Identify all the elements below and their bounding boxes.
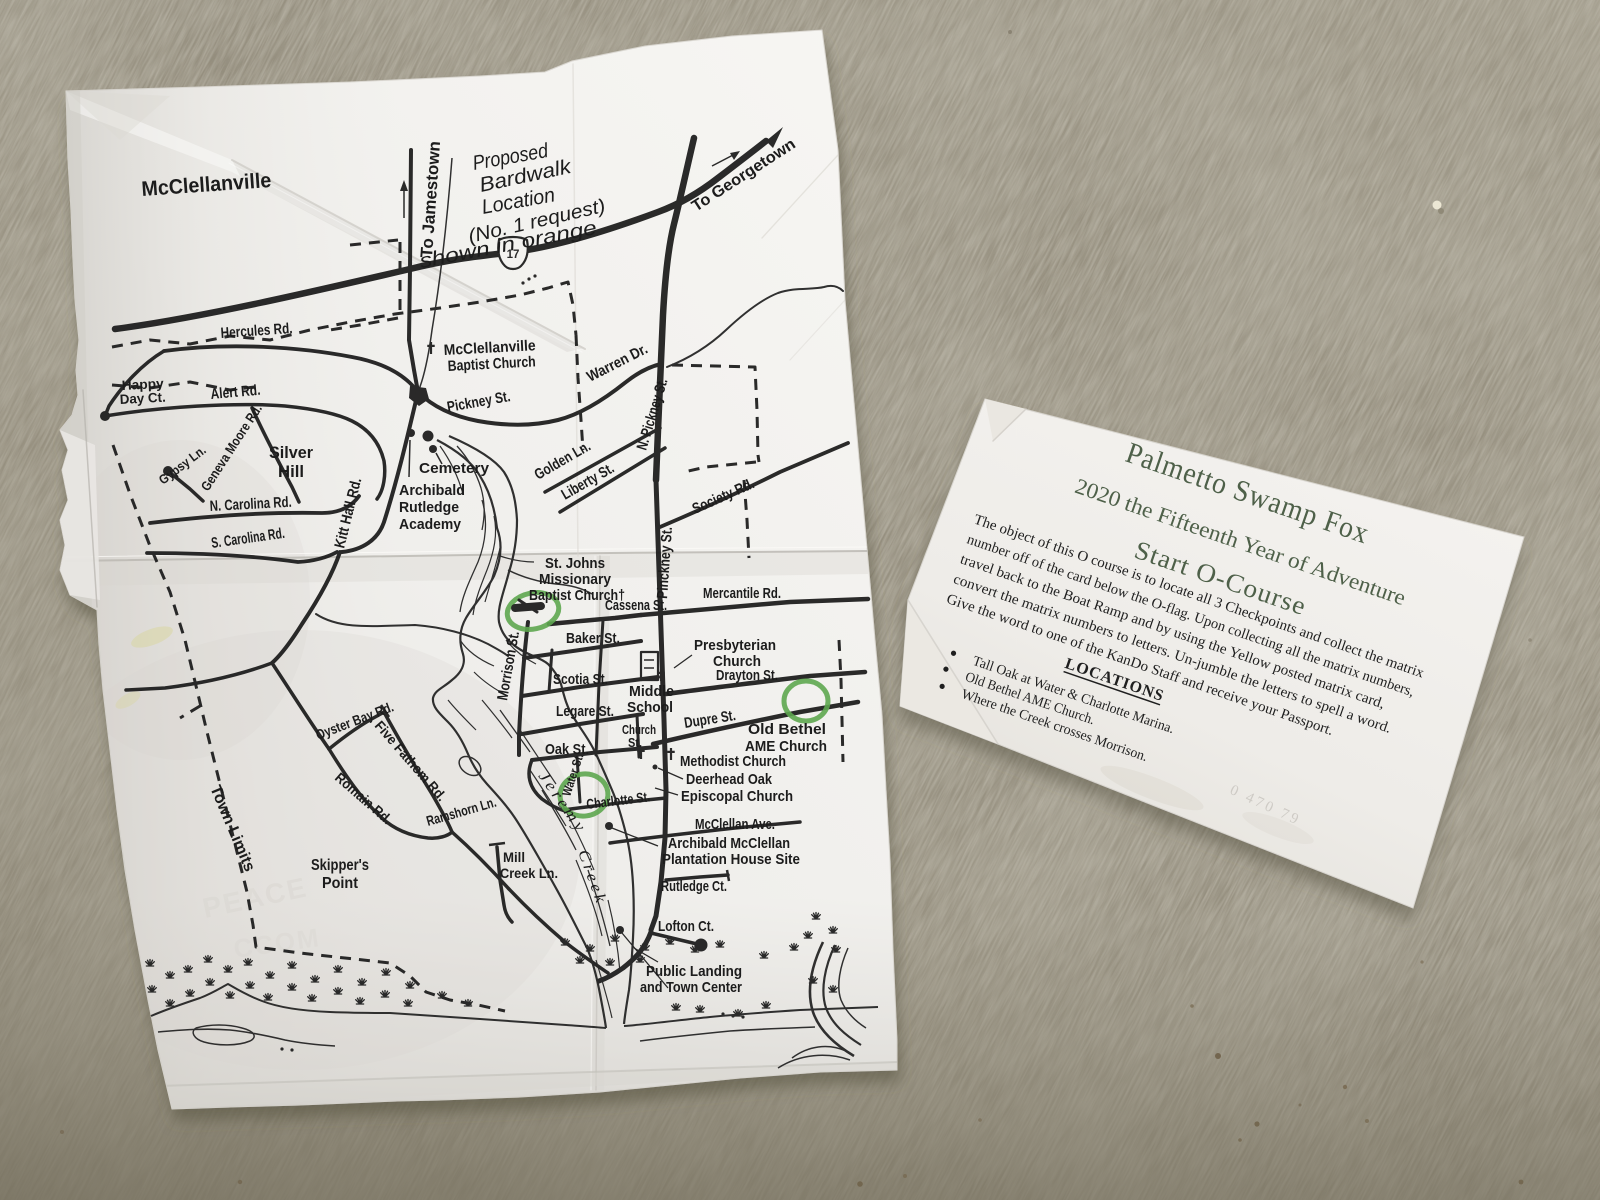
- svg-text:Drayton St.: Drayton St.: [716, 667, 778, 684]
- svg-text:Baker St.: Baker St.: [566, 630, 620, 647]
- svg-text:Rutledge Ct.: Rutledge Ct.: [661, 878, 727, 895]
- svg-text:Church: Church: [622, 723, 656, 737]
- svg-text:Methodist Church: Methodist Church: [680, 753, 786, 770]
- svg-text:Hill: Hill: [278, 462, 304, 481]
- svg-text:School: School: [627, 699, 673, 716]
- svg-text:Archibald McClellan: Archibald McClellan: [668, 835, 790, 852]
- svg-text:Point: Point: [322, 875, 359, 892]
- svg-text:Lofton Ct.: Lofton Ct.: [658, 918, 714, 935]
- svg-text:Legare St.: Legare St.: [556, 703, 614, 720]
- svg-text:Presbyterian: Presbyterian: [694, 637, 776, 654]
- svg-text:Skipper's: Skipper's: [311, 857, 369, 874]
- svg-text:St. Johns: St. Johns: [545, 555, 605, 572]
- svg-text:McClellan Ave.: McClellan Ave.: [695, 816, 775, 833]
- svg-text:Cassena St.: Cassena St.: [605, 597, 667, 614]
- svg-text:and Town Center: and Town Center: [640, 979, 742, 996]
- svg-text:Old Bethel: Old Bethel: [748, 721, 826, 738]
- svg-text:Plantation House Site: Plantation House Site: [662, 851, 800, 868]
- svg-text:Silver: Silver: [269, 443, 313, 462]
- svg-text:Episcopal Church: Episcopal Church: [681, 788, 793, 805]
- svg-text:Mill: Mill: [503, 850, 525, 865]
- svg-text:Academy: Academy: [399, 516, 462, 533]
- svg-text:St.: St.: [628, 736, 642, 750]
- svg-text:Day Ct.: Day Ct.: [119, 390, 166, 407]
- svg-text:Creek Ln.: Creek Ln.: [500, 866, 558, 881]
- svg-text:Mercantile Rd.: Mercantile Rd.: [703, 585, 781, 602]
- svg-text:Rutledge: Rutledge: [399, 499, 459, 516]
- svg-text:Missionary: Missionary: [539, 571, 612, 588]
- svg-text:Public Landing: Public Landing: [646, 963, 742, 980]
- svg-text:Archibald: Archibald: [399, 482, 465, 499]
- svg-text:Cemetery: Cemetery: [419, 460, 490, 477]
- svg-text:Middle: Middle: [629, 683, 674, 700]
- svg-text:Deerhead Oak: Deerhead Oak: [686, 771, 773, 788]
- svg-text:Scotia St.: Scotia St.: [553, 671, 608, 688]
